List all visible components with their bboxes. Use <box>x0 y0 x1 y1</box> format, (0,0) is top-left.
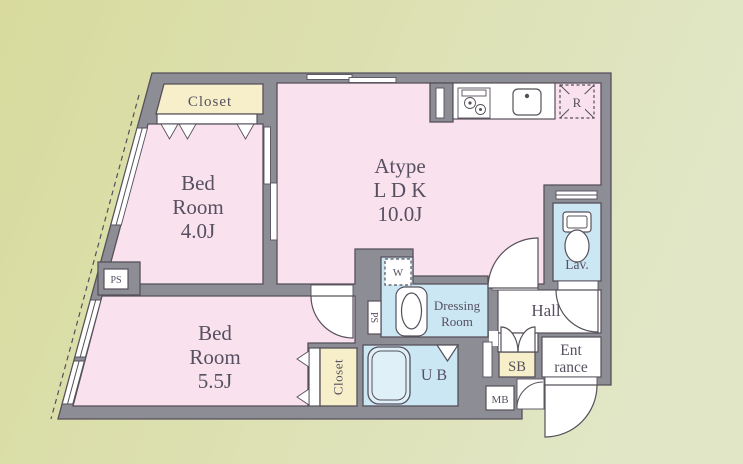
closet-top-label: Closet <box>188 94 232 110</box>
closet-bottom-label: Closet <box>331 359 346 395</box>
lavatory-door-opening <box>558 281 598 290</box>
hall-label: Hall <box>531 301 561 320</box>
dressing-room-label-1: Dressing <box>434 298 481 313</box>
pipe-space-mid-label: PS <box>368 312 379 323</box>
unit-bath-label: UB <box>421 367 451 384</box>
bedroom1-sliding-door-1 <box>264 127 271 184</box>
ldk-label-1: Atype <box>374 154 425 178</box>
dressing-room-label-2: Room <box>441 314 473 329</box>
bathtub-icon <box>368 347 410 404</box>
bedroom2-label-3: 5.5J <box>198 369 232 393</box>
sink-faucet-dot <box>525 94 529 98</box>
entrance-label-1: Ent <box>560 342 582 359</box>
ldk-window-pane2 <box>349 78 396 83</box>
lavatory-label: Lav. <box>565 257 589 272</box>
bedroom1-sliding-door-2 <box>271 183 278 240</box>
kitchen-stub-slot <box>436 88 444 118</box>
closet-bottom-track <box>309 348 320 406</box>
ldk-label-3: 10.0J <box>378 202 423 226</box>
washing-machine-label: W <box>393 267 404 279</box>
washbasin-bowl <box>402 293 422 329</box>
bedroom2-label-1: Bed <box>198 321 232 345</box>
stove-burner-2-dot <box>479 108 482 111</box>
bedroom1-label-3: 4.0J <box>181 219 215 243</box>
shoe-box-label: SB <box>508 359 526 375</box>
refrigerator-label: R <box>573 95 582 110</box>
floor-plan: R W <box>0 0 743 464</box>
bedroom2-door-opening <box>311 285 353 296</box>
meter-box-label: MB <box>491 394 508 406</box>
closet-top-track <box>157 114 257 124</box>
bedroom2-label-2: Room <box>189 345 240 369</box>
ldk-window-pane1 <box>307 75 352 80</box>
entrance-door-opening <box>545 377 597 385</box>
pipe-space-left-label: PS <box>110 275 121 286</box>
pipe-slot <box>483 342 492 377</box>
ldk-label-2: L D K <box>374 178 427 202</box>
bedroom1-label-1: Bed <box>181 171 215 195</box>
sink-icon <box>513 89 541 115</box>
entrance-label-2: rance <box>554 359 588 376</box>
stove-back-panel <box>462 90 486 96</box>
stove-burner-1-dot <box>468 101 471 104</box>
bedroom1-label-2: Room <box>172 195 223 219</box>
